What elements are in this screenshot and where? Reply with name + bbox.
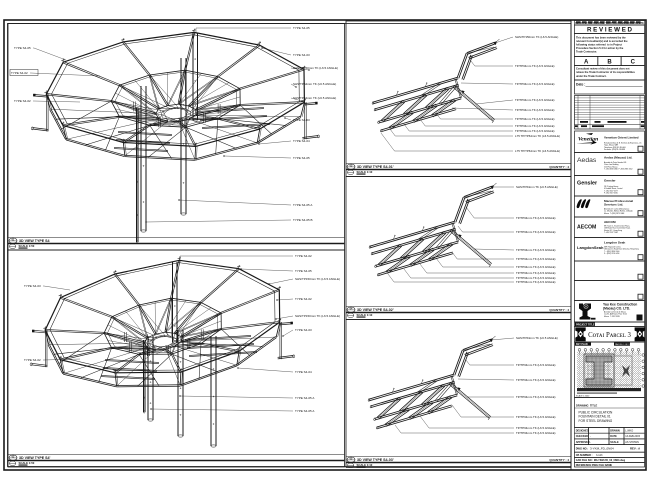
- svg-text:SCALE 1:50: SCALE 1:50: [19, 461, 35, 465]
- svg-text:SHS/TP64mm TK (L6.5 ANGLE): SHS/TP64mm TK (L6.5 ANGLE): [293, 96, 336, 100]
- svg-text:TP/TP64mm TK (L6.5 ANGLE): TP/TP64mm TK (L6.5 ANGLE): [516, 265, 556, 269]
- svg-text:SCALE 1:50: SCALE 1:50: [19, 244, 35, 248]
- svg-text:F + (852) 2576 0416: F + (852) 2576 0416: [604, 253, 619, 255]
- svg-text:AECOM: AECOM: [577, 225, 596, 231]
- svg-text:Venetian Orient Limited: Venetian Orient Limited: [604, 136, 639, 140]
- svg-text:SHS/TP64mm TK (L6.5 ANGLE): SHS/TP64mm TK (L6.5 ANGLE): [293, 82, 336, 86]
- svg-text:DRAWING TITLE: DRAWING TITLE: [576, 404, 597, 408]
- svg-text:REV : A: REV : A: [630, 447, 640, 451]
- svg-text:CAD FILE NO : M3-YKM-FD_03_0N0: CAD FILE NO : M3-YKM-FD_03_0N04.dwg: [576, 459, 626, 462]
- svg-text:relevant Consultant(s) and is: relevant Consultant(s) and is accorded t…: [576, 39, 628, 43]
- svg-text:LangdonSeah: LangdonSeah: [577, 245, 604, 250]
- svg-text:Macau T: (853) 2875 3088: Macau T: (853) 2875 3088: [604, 213, 624, 215]
- svg-text:B: B: [607, 59, 612, 65]
- svg-text:Macau T: 2837 3339: Macau T: 2837 3339: [604, 316, 620, 318]
- svg-text:AS SHOWN: AS SHOWN: [625, 441, 639, 444]
- svg-text:T +853 2833 1840 F +853 2833: T +853 2833 1840 F +853 2833 1552: [604, 169, 632, 171]
- svg-text:Langdon Seah: Langdon Seah: [604, 241, 625, 245]
- svg-text:FOR STEEL DRAWING: FOR STEEL DRAWING: [579, 419, 613, 423]
- svg-text:T +852 2317 7000: T +852 2317 7000: [604, 232, 618, 234]
- svg-text:SHS/TP150mm TK (L6.5 ANGLE): SHS/TP150mm TK (L6.5 ANGLE): [293, 66, 338, 70]
- svg-text:TYPE S4-03: TYPE S4-03: [295, 328, 312, 332]
- svg-text:L.WKO: L.WKO: [625, 430, 633, 433]
- svg-text:Gensler: Gensler: [604, 179, 616, 183]
- svg-text:-: -: [590, 441, 591, 444]
- svg-text:SHS/TP150mm TK (L6.5 ANGLE): SHS/TP150mm TK (L6.5 ANGLE): [295, 277, 340, 281]
- svg-text:DESIGNED: DESIGNED: [576, 430, 589, 433]
- svg-text:TYPE S4-02: TYPE S4-02: [11, 71, 28, 75]
- svg-text:R E V I E W E D: R E V I E W E D: [587, 27, 633, 34]
- svg-text:TYPE S4-04: TYPE S4-04: [293, 139, 310, 143]
- svg-text:TYPE S4-03: TYPE S4-03: [24, 284, 41, 288]
- svg-text:TP/TP64mm TK (L6.5 ANGLE): TP/TP64mm TK (L6.5 ANGLE): [516, 378, 556, 382]
- svg-text:QUANTITY : 4: QUANTITY : 4: [549, 308, 569, 312]
- svg-text:(Macau) CO. LTD.: (Macau) CO. LTD.: [603, 307, 630, 311]
- svg-text:SCALE: SCALE: [610, 441, 619, 444]
- svg-text:Gensler: Gensler: [577, 181, 598, 187]
- svg-text:L75 TP/TP64mm TK (L6.5 ANGLE): L75 TP/TP64mm TK (L6.5 ANGLE): [515, 149, 560, 153]
- svg-text:DRAWN: DRAWN: [610, 430, 620, 433]
- svg-text:DWG NO :: DWG NO :: [576, 447, 589, 451]
- svg-text:TP/TP64mm TK (L6.5 ANGLE): TP/TP64mm TK (L6.5 ANGLE): [515, 82, 555, 86]
- svg-text:TP/TP64mm TK (L6.5 ANGLE): TP/TP64mm TK (L6.5 ANGLE): [515, 129, 555, 133]
- svg-text:following status referred to: following status referred to in Project: [576, 43, 622, 47]
- svg-text:PROJECT TITLE: PROJECT TITLE: [576, 323, 595, 326]
- svg-text:TP/TP64mm TK (L6.5 ANGLE): TP/TP64mm TK (L6.5 ANGLE): [515, 108, 555, 112]
- svg-text:REFERENCE DWG FILE NAME: REFERENCE DWG FILE NAME: [576, 464, 613, 467]
- svg-text:3-YKM_FD_0N04: 3-YKM_FD_0N04: [590, 447, 614, 451]
- svg-text:3D VIEW TYPE S4: 3D VIEW TYPE S4: [19, 239, 50, 243]
- svg-text:Consultant review of this docu: Consultant review of this document does …: [576, 68, 630, 71]
- svg-text:This document has been reviewe: This document has been reviewed by the: [576, 35, 626, 39]
- svg-text:SCALE 1:2000: SCALE 1:2000: [576, 394, 590, 397]
- svg-text:TP/TP64mm TK (L6.5 ANGLE): TP/TP64mm TK (L6.5 ANGLE): [516, 415, 556, 419]
- svg-text:C: C: [631, 59, 636, 65]
- svg-text:SHS/TP150mm TK (L6.5 ANGLE): SHS/TP150mm TK (L6.5 ANGLE): [295, 314, 340, 318]
- svg-text:TYPE S4-05: TYPE S4-05: [295, 269, 312, 273]
- svg-text:L75 TP/TP64mm TK (L6.5 ANGLE): L75 TP/TP64mm TK (L6.5 ANGLE): [515, 134, 560, 138]
- svg-text:3D VIEW TYPE S4': 3D VIEW TYPE S4': [19, 456, 51, 460]
- svg-text:TYPE S4-02: TYPE S4-02: [295, 297, 312, 301]
- svg-text:Venetian: Venetian: [578, 137, 598, 143]
- svg-text:3-123: 3-123: [596, 454, 603, 457]
- svg-text:TP/TP64mm TK (L6.5 ANGLE): TP/TP64mm TK (L6.5 ANGLE): [516, 271, 556, 275]
- svg-text:3D VIEW TYPE S4-02': 3D VIEW TYPE S4-02': [357, 308, 394, 312]
- svg-text:-: -: [590, 435, 591, 438]
- svg-text:TYPE S4-05: TYPE S4-05: [293, 156, 310, 160]
- svg-text:TP/TP64mm TK (L6.5 ANGLE): TP/TP64mm TK (L6.5 ANGLE): [516, 363, 556, 367]
- svg-text:DATE: DATE: [610, 435, 617, 438]
- svg-text:Aedas (Macau) Ltd.: Aedas (Macau) Ltd.: [604, 156, 633, 160]
- svg-text:Trade Contractor.: Trade Contractor.: [576, 50, 597, 54]
- svg-text:APPROVED: APPROVED: [576, 441, 590, 444]
- svg-text:Aedas: Aedas: [577, 157, 597, 164]
- svg-text:QUANTITY : 4: QUANTITY : 4: [549, 165, 569, 169]
- svg-text:SHS/TP150mm TK (L6.5 ANGLE): SHS/TP150mm TK (L6.5 ANGLE): [515, 35, 558, 39]
- svg-text:CB NUMBER :: CB NUMBER :: [576, 454, 593, 457]
- svg-text:TP/TP64mm TK (L6.5 ANGLE): TP/TP64mm TK (L6.5 ANGLE): [516, 395, 556, 399]
- svg-text:TYPE S4-05: TYPE S4-05: [293, 26, 310, 30]
- svg-text:SCALE 1:10: SCALE 1:10: [357, 463, 373, 467]
- svg-text:TP/TP64mm TK (L6.5 ANGLE): TP/TP64mm TK (L6.5 ANGLE): [516, 257, 556, 261]
- svg-text:TP/TP64mm TK (L6.5 ANGLE): TP/TP64mm TK (L6.5 ANGLE): [515, 117, 555, 121]
- svg-text:Facsimile: (853) 81-118-888: Facsimile: (853) 81-118-888: [604, 149, 625, 151]
- svg-text:SHS/TP64mm TK (L6.5 ANGLE): SHS/TP64mm TK (L6.5 ANGLE): [516, 336, 558, 340]
- svg-text:3D VIEW TYPE S4-01': 3D VIEW TYPE S4-01': [357, 165, 394, 169]
- svg-text:TYPE S4-05 A: TYPE S4-05 A: [295, 396, 314, 400]
- svg-text:Services Ltd.: Services Ltd.: [604, 203, 623, 207]
- svg-text:TYPE S4-02: TYPE S4-02: [24, 358, 41, 362]
- svg-text:TP/TP64mm TK (L6.5 ANGLE): TP/TP64mm TK (L6.5 ANGLE): [515, 124, 555, 128]
- svg-text:13-FEB-2015: 13-FEB-2015: [625, 435, 640, 438]
- svg-text:A: A: [584, 59, 589, 65]
- svg-text:TP/TP64mm TK (L6.5 ANGLE): TP/TP64mm TK (L6.5 ANGLE): [516, 431, 556, 435]
- svg-text:TYPE S4-05 A: TYPE S4-05 A: [295, 409, 314, 413]
- svg-text:PARCEL 1 OF 3: PARCEL 1 OF 3: [615, 343, 630, 346]
- svg-text:TYPE S4-03: TYPE S4-03: [293, 53, 310, 57]
- svg-text:TP/TP64mm TK (L6.5 ANGLE): TP/TP64mm TK (L6.5 ANGLE): [516, 426, 556, 430]
- svg-text:TYPE S4-04: TYPE S4-04: [295, 370, 312, 374]
- svg-text:TYPE S4-05 B: TYPE S4-05 B: [293, 218, 313, 222]
- svg-text:TP/TP64mm TK (L6.5 ANGLE): TP/TP64mm TK (L6.5 ANGLE): [516, 230, 556, 234]
- svg-text:TYPE S4-02: TYPE S4-02: [295, 254, 312, 258]
- svg-text:TP/TP64mm TK (L6.5 ANGLE): TP/TP64mm TK (L6.5 ANGLE): [516, 280, 556, 284]
- svg-text:TYPE S4-05: TYPE S4-05: [14, 46, 31, 50]
- svg-text:Procedure Section 5.4 for acti: Procedure Section 5.4 for action by the: [576, 46, 624, 50]
- svg-text:TYPE S4-03: TYPE S4-03: [293, 118, 310, 122]
- svg-text:KEY PLAN: KEY PLAN: [576, 343, 588, 346]
- svg-text:Date :: Date :: [576, 83, 585, 87]
- svg-text:TP/TP64mm TK (L6.5 ANGLE): TP/TP64mm TK (L6.5 ANGLE): [515, 64, 555, 68]
- svg-text:SCALE 1:10: SCALE 1:10: [357, 170, 373, 174]
- svg-text:CHECKED: CHECKED: [576, 435, 589, 438]
- svg-text:F +852 2507 0555: F +852 2507 0555: [604, 193, 618, 195]
- svg-text:AECOM: AECOM: [604, 220, 616, 224]
- svg-text:Cᴏᴛᴀɪ Pᴀʀᴄᴇʟ 3: Cᴏᴛᴀɪ Pᴀʀᴄᴇʟ 3: [588, 332, 631, 339]
- svg-text:under the Trade Contract.: under the Trade Contract.: [576, 75, 607, 78]
- svg-text:relieve the Trade Contractor o: relieve the Trade Contractor of its resp…: [576, 71, 636, 74]
- svg-text:TYPE S4-05 A: TYPE S4-05 A: [293, 203, 312, 207]
- svg-text:SCALE 1:10: SCALE 1:10: [357, 313, 373, 317]
- svg-text:TP/TP64mm TK (L6.5 ANGLE): TP/TP64mm TK (L6.5 ANGLE): [516, 248, 556, 252]
- svg-text:QUANTITY : 4: QUANTITY : 4: [549, 458, 569, 462]
- svg-text:TP/TP64mm TK (L6.5 ANGLE): TP/TP64mm TK (L6.5 ANGLE): [516, 216, 556, 220]
- svg-text:TYPE S4-02: TYPE S4-02: [14, 99, 31, 103]
- svg-text:3D VIEW TYPE S4-03': 3D VIEW TYPE S4-03': [357, 458, 394, 462]
- svg-text:TP/TP64mm TK (L6.5 ANGLE): TP/TP64mm TK (L6.5 ANGLE): [515, 98, 555, 102]
- svg-text:SHS/TP64mm TK (L6.5 ANGLE): SHS/TP64mm TK (L6.5 ANGLE): [516, 185, 558, 189]
